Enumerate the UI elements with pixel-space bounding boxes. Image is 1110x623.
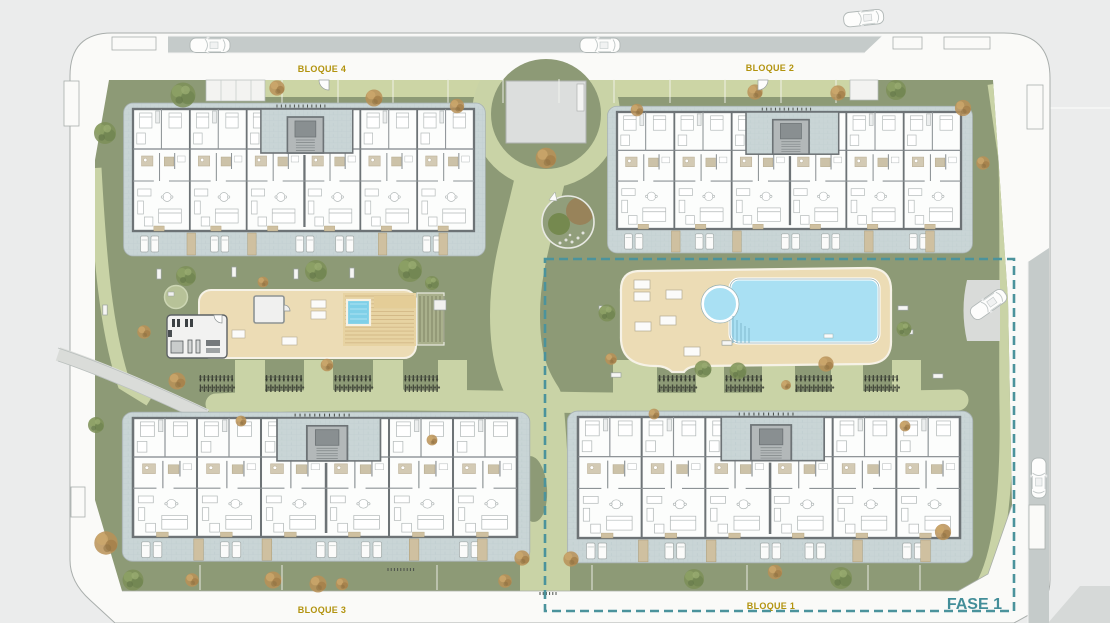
svg-text:BLOQUE 3: BLOQUE 3 xyxy=(298,605,346,615)
svg-text:FASE 1: FASE 1 xyxy=(947,596,1002,613)
svg-text:BLOQUE 2: BLOQUE 2 xyxy=(746,63,794,73)
svg-text:BLOQUE 4: BLOQUE 4 xyxy=(298,64,346,74)
svg-text:BLOQUE 1: BLOQUE 1 xyxy=(747,601,795,611)
